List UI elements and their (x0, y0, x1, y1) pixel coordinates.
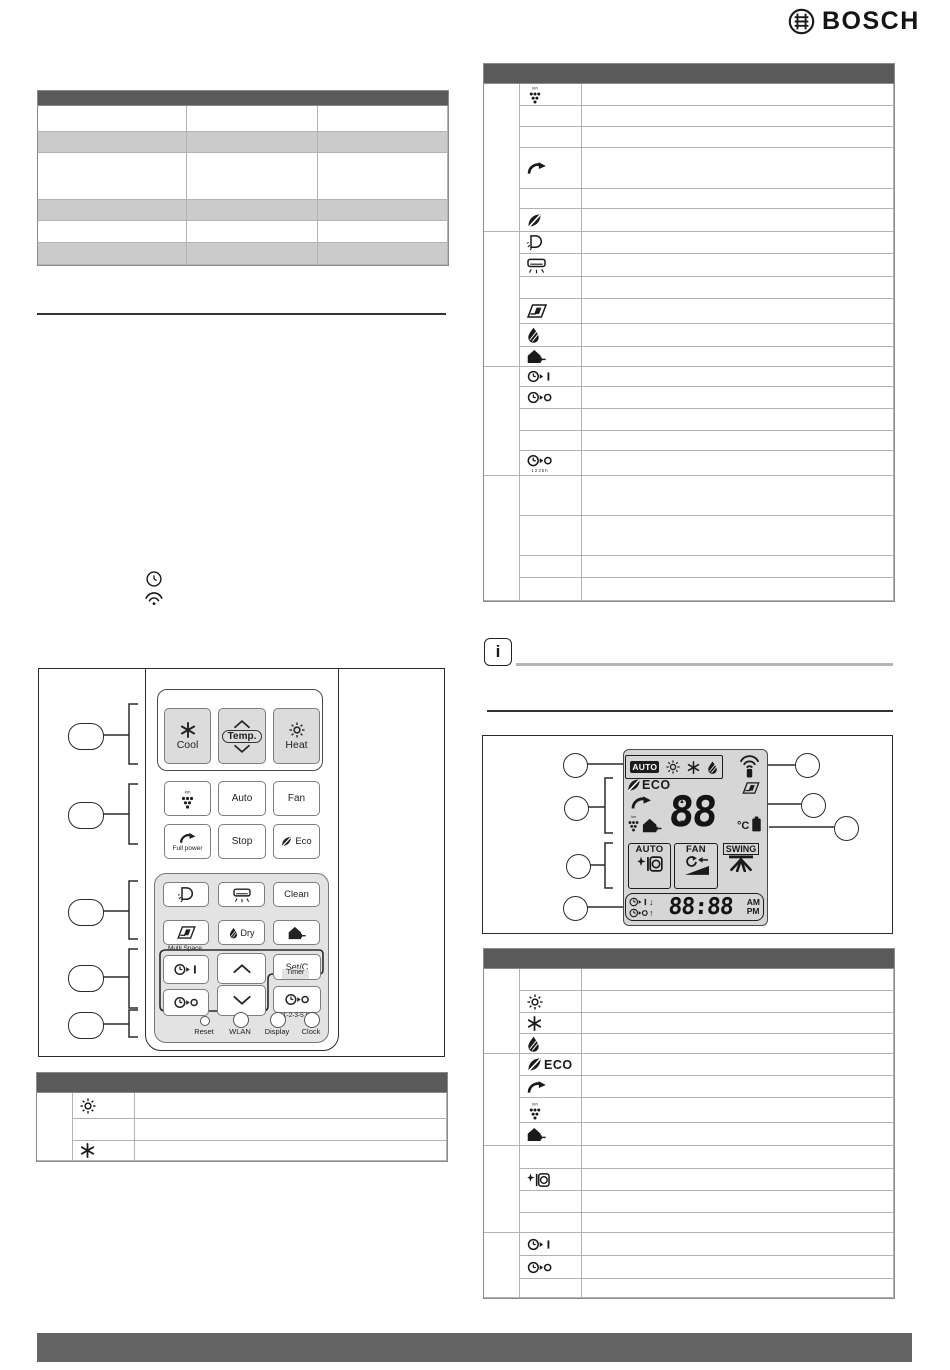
timer-off-icon (629, 908, 648, 918)
symbol-cell (520, 277, 582, 299)
time-strip: ↓ ↑ 88:88 AM PM (625, 893, 764, 921)
lcd-display-figure: AUTO ECO 88 ▲ ▼ °C (482, 735, 893, 934)
timer-on-icon (629, 897, 648, 907)
sun-icon (666, 760, 680, 774)
clean-button: Clean (273, 882, 320, 907)
section-cell-2 (484, 1054, 520, 1146)
lcd-callout-2 (564, 796, 589, 821)
louver-icon (742, 782, 760, 794)
stop-button-label: Stop (232, 836, 253, 847)
timer-off-button (163, 989, 209, 1016)
description-cell (582, 1233, 894, 1256)
eco-text: ECO (642, 778, 671, 792)
chevron-down-icon (231, 995, 253, 1006)
lcd-callout-1 (563, 753, 588, 778)
callout-3 (68, 899, 104, 926)
clean-action-symbol-cell (520, 1169, 582, 1191)
description-cell (135, 1141, 447, 1161)
cell (187, 221, 318, 243)
remote-control-figure: Cool Temp. Heat Auto Fan Full power Stop… (38, 668, 445, 1057)
louver-icon (177, 926, 196, 939)
description-cell (582, 324, 894, 347)
timer-off-icon (174, 996, 198, 1009)
eco-leaf-symbol-cell (520, 209, 582, 232)
symbol-cell (520, 476, 582, 516)
time-display: 88:88 (653, 894, 748, 920)
timer-1235-icon (527, 454, 552, 473)
description-cell (582, 1054, 894, 1076)
timer-on-symbol-cell (520, 1233, 582, 1256)
snowflake-icon (687, 761, 700, 774)
auto-fan-icon (637, 855, 663, 873)
info-note-rule (516, 663, 893, 666)
sun-icon (289, 722, 305, 738)
timer-on-icon (174, 963, 198, 976)
temp-unit: °C (737, 820, 749, 832)
cell (187, 200, 318, 221)
dry-drop-symbol-cell (520, 1034, 582, 1054)
description-cell (582, 578, 894, 601)
description-cell (582, 347, 894, 367)
chevron-up-icon (232, 719, 252, 729)
cell (38, 132, 187, 153)
home-leave-icon (527, 349, 546, 364)
description-cell (582, 1191, 894, 1213)
clean-button-label: Clean (284, 889, 309, 900)
description-cell (582, 1213, 894, 1233)
description-cell (135, 1093, 447, 1119)
section-cell-2 (484, 232, 520, 367)
description-cell (582, 387, 894, 409)
description-cell (582, 409, 894, 431)
wifi-icon (144, 590, 164, 605)
timer-group-label: Timer (282, 969, 309, 979)
indoor-display-icon (233, 887, 251, 903)
full-power-button: Full power (164, 824, 211, 859)
eco-label: ECO (544, 1058, 573, 1072)
symbol-cell (520, 969, 582, 991)
left-section-rule (37, 313, 446, 315)
clean-action-icon (527, 1172, 550, 1188)
timer-off-icon (527, 391, 552, 404)
timer-label-text: Timer (287, 969, 305, 976)
symbol-cell (520, 1213, 582, 1233)
description-cell (582, 1013, 894, 1034)
wifi-router-icon (737, 753, 762, 778)
section-cell-4 (484, 1233, 520, 1298)
description-cell (582, 189, 894, 209)
home-leave-symbol-cell (520, 347, 582, 367)
auto-button-label: Auto (232, 793, 253, 804)
callout-5 (68, 1012, 104, 1039)
timer-down-arrow: ↓ (649, 897, 654, 907)
timer-off-symbol-cell (520, 1256, 582, 1279)
symbol-cell (520, 578, 582, 601)
bottom-right-symbols-table: ECO (483, 948, 895, 1299)
timer-on-icon (527, 370, 552, 383)
eco-leaf-symbol-cell: ECO (520, 1054, 582, 1076)
cell (38, 243, 187, 265)
timer-off-icon (285, 993, 309, 1006)
description-cell (582, 148, 894, 189)
lcd-callout-5 (795, 753, 820, 778)
dry-drop-icon (707, 761, 718, 774)
lcd-callout-6 (801, 793, 826, 818)
cell (318, 132, 448, 153)
callout-1 (68, 723, 104, 750)
description-cell (582, 516, 894, 556)
description-cell (582, 299, 894, 324)
indoor-display-icon (527, 257, 546, 274)
display-light-button (218, 882, 265, 907)
section-cell-4 (484, 476, 520, 601)
wlan-button (233, 1012, 249, 1028)
cool-button: Cool (164, 708, 211, 764)
description-cell (582, 969, 894, 991)
eco-leaf-icon (627, 778, 641, 792)
cell (187, 132, 318, 153)
symbol-cell (520, 1191, 582, 1213)
ion-icon (179, 789, 196, 809)
full-power-button-label: Full power (173, 845, 203, 852)
eco-indicator: ECO (627, 778, 671, 792)
heat-button: Heat (273, 708, 320, 764)
cell (187, 106, 318, 132)
temp-button: Temp. (218, 708, 266, 764)
symbol-cell (520, 1146, 582, 1169)
eco-leaf-icon (527, 1057, 542, 1072)
dry-drop-icon (527, 327, 540, 343)
clock-button (304, 1012, 320, 1028)
home-leave-symbol-cell (520, 1123, 582, 1146)
symbol-cell (520, 189, 582, 209)
sun-icon (527, 994, 543, 1010)
timer-1235h-button (273, 986, 321, 1013)
cell (318, 243, 448, 265)
ion-icon (527, 85, 543, 104)
symbol-cell (73, 1119, 135, 1141)
top-right-symbols-table (483, 63, 895, 602)
description-cell (582, 476, 894, 516)
chevron-down-icon (232, 744, 252, 754)
snowflake-symbol-cell (520, 1013, 582, 1034)
dry-drop-icon (527, 1036, 540, 1052)
sun-symbol-cell (73, 1093, 135, 1119)
ion-icon (626, 814, 641, 832)
fan-button: Fan (273, 781, 320, 816)
full-power-icon (527, 161, 546, 175)
reset-label: Reset (189, 1027, 219, 1036)
swing-indicator: SWING (720, 843, 762, 872)
description-cell (582, 127, 894, 148)
lcd-callout-7 (834, 816, 859, 841)
sun-symbol-cell (520, 991, 582, 1013)
swing-fan-icon (722, 855, 760, 872)
fan-auto-box: AUTO (628, 843, 671, 889)
full-power-symbol-cell (520, 148, 582, 189)
right-section-rule (487, 710, 893, 712)
symbol-cell (520, 409, 582, 431)
dry-button-label: Dry (241, 928, 255, 938)
temperature-display: 88 (668, 792, 717, 832)
description-cell (582, 451, 894, 476)
full-power-icon (631, 795, 651, 810)
self-clean-symbol-cell (520, 232, 582, 254)
cell (187, 243, 318, 265)
multi-space-button (163, 920, 209, 945)
ion-symbol-cell (520, 84, 582, 106)
cell (318, 153, 448, 200)
bottom-left-table (36, 1072, 448, 1162)
lcd-callout-4 (563, 896, 588, 921)
table-header-row (484, 949, 894, 969)
mode-strip: AUTO (625, 755, 723, 779)
temp-up-mark: ▲ (679, 799, 685, 805)
description-cell (582, 254, 894, 277)
table-header-row (38, 91, 448, 106)
section-cell-3 (484, 1146, 520, 1233)
callout-2 (68, 802, 104, 829)
timer-1235-symbol-cell (520, 451, 582, 476)
self-clean-button (163, 882, 209, 907)
info-note-label: i (496, 642, 501, 662)
auto-button: Auto (218, 781, 266, 816)
description-cell (582, 1098, 894, 1123)
symbol-cell (520, 516, 582, 556)
clock-icon (146, 571, 162, 587)
description-cell (582, 1034, 894, 1054)
info-note-icon: i (484, 638, 512, 666)
section-cell-1 (484, 84, 520, 232)
timer-up-button (217, 953, 266, 984)
snowflake-icon (527, 1016, 542, 1031)
full-power-symbol-cell (520, 1076, 582, 1098)
cell (318, 200, 448, 221)
eco-leaf-icon (527, 213, 542, 228)
heat-button-label: Heat (285, 739, 307, 751)
clock-label: Clock (296, 1027, 326, 1036)
multi-space-label: Multi Space (157, 945, 213, 952)
full-power-icon (527, 1080, 546, 1094)
battery-icon (751, 816, 762, 832)
ion-symbol-cell (520, 1098, 582, 1123)
description-cell (582, 1169, 894, 1191)
footer-bar (37, 1333, 912, 1362)
description-cell (582, 1146, 894, 1169)
fan-box: FAN (674, 843, 718, 889)
eco-button: Eco (273, 824, 320, 859)
description-cell (582, 232, 894, 254)
brand-logo: BOSCH (788, 7, 920, 36)
description-cell (582, 991, 894, 1013)
eco-button-label: Eco (295, 836, 311, 847)
timer-on-icon (527, 1238, 552, 1251)
bosch-armature-icon (788, 8, 815, 35)
callout-4 (68, 965, 104, 992)
snowflake-icon (180, 722, 196, 738)
pm-indicator: PM (747, 907, 760, 916)
description-cell (135, 1119, 447, 1141)
fan-speed-icon (683, 855, 710, 876)
mode-auto-indicator: AUTO (630, 761, 659, 773)
home-leave-icon (642, 818, 662, 833)
top-left-table (37, 90, 449, 266)
dry-button: Dry (218, 920, 265, 945)
symbol-cell (520, 1279, 582, 1298)
table-header-row (37, 1073, 447, 1093)
description-cell (582, 1256, 894, 1279)
louver-icon (527, 304, 547, 318)
home-leave-icon (288, 926, 306, 940)
self-clean-icon (178, 886, 194, 903)
cell (318, 221, 448, 243)
description-cell (582, 209, 894, 232)
swing-box-label: SWING (723, 843, 760, 855)
lcd-callout-3 (566, 854, 591, 879)
description-cell (582, 556, 894, 578)
cell (187, 153, 318, 200)
cell (318, 106, 448, 132)
fan-box-label: FAN (686, 844, 706, 855)
temp-button-label: Temp. (222, 730, 263, 743)
snowflake-icon (80, 1143, 95, 1158)
table-header-row (484, 64, 894, 84)
brand-logo-text: BOSCH (822, 7, 920, 36)
symbol-cell (520, 106, 582, 127)
chevron-up-icon (231, 963, 253, 974)
display-button (270, 1012, 286, 1028)
dry-drop-symbol-cell (520, 324, 582, 347)
cool-button-label: Cool (177, 739, 199, 751)
description-cell (582, 106, 894, 127)
timer-on-symbol-cell (520, 367, 582, 387)
temp-down-mark: ▼ (679, 820, 685, 826)
section-cell-1 (484, 969, 520, 1054)
dry-drop-icon (229, 927, 238, 939)
description-cell (582, 1123, 894, 1146)
description-cell (582, 431, 894, 451)
symbol-cell (520, 431, 582, 451)
home-leave-button (273, 920, 320, 945)
description-cell (582, 277, 894, 299)
description-cell (582, 84, 894, 106)
symbol-cell (520, 556, 582, 578)
eco-leaf-icon (281, 836, 292, 847)
section-cell-1 (37, 1093, 73, 1161)
fan-button-label: Fan (288, 793, 305, 804)
symbol-cell (520, 127, 582, 148)
sun-icon (80, 1098, 96, 1114)
cell (38, 153, 187, 200)
self-clean-icon (527, 234, 543, 251)
home-leave-icon (527, 1127, 546, 1142)
louver-symbol-cell (520, 299, 582, 324)
indoor-display-symbol-cell (520, 254, 582, 277)
display-label: Display (260, 1027, 294, 1036)
ion-icon (527, 1101, 543, 1120)
cell (38, 106, 187, 132)
description-cell (582, 1279, 894, 1298)
ion-button (164, 781, 211, 816)
full-power-icon (179, 832, 196, 844)
section-cell-3 (484, 367, 520, 476)
stop-button: Stop (218, 824, 266, 859)
description-cell (582, 1076, 894, 1098)
fan-auto-box-label: AUTO (636, 844, 664, 855)
cell (38, 221, 187, 243)
wlan-label: WLAN (225, 1027, 255, 1036)
timer-on-button (163, 955, 209, 984)
lcd-panel: AUTO ECO 88 ▲ ▼ °C (623, 749, 768, 926)
description-cell (582, 367, 894, 387)
timer-off-icon (527, 1261, 552, 1274)
cell (38, 200, 187, 221)
timer-off-symbol-cell (520, 387, 582, 409)
reset-button (200, 1016, 210, 1026)
snowflake-symbol-cell (73, 1141, 135, 1161)
